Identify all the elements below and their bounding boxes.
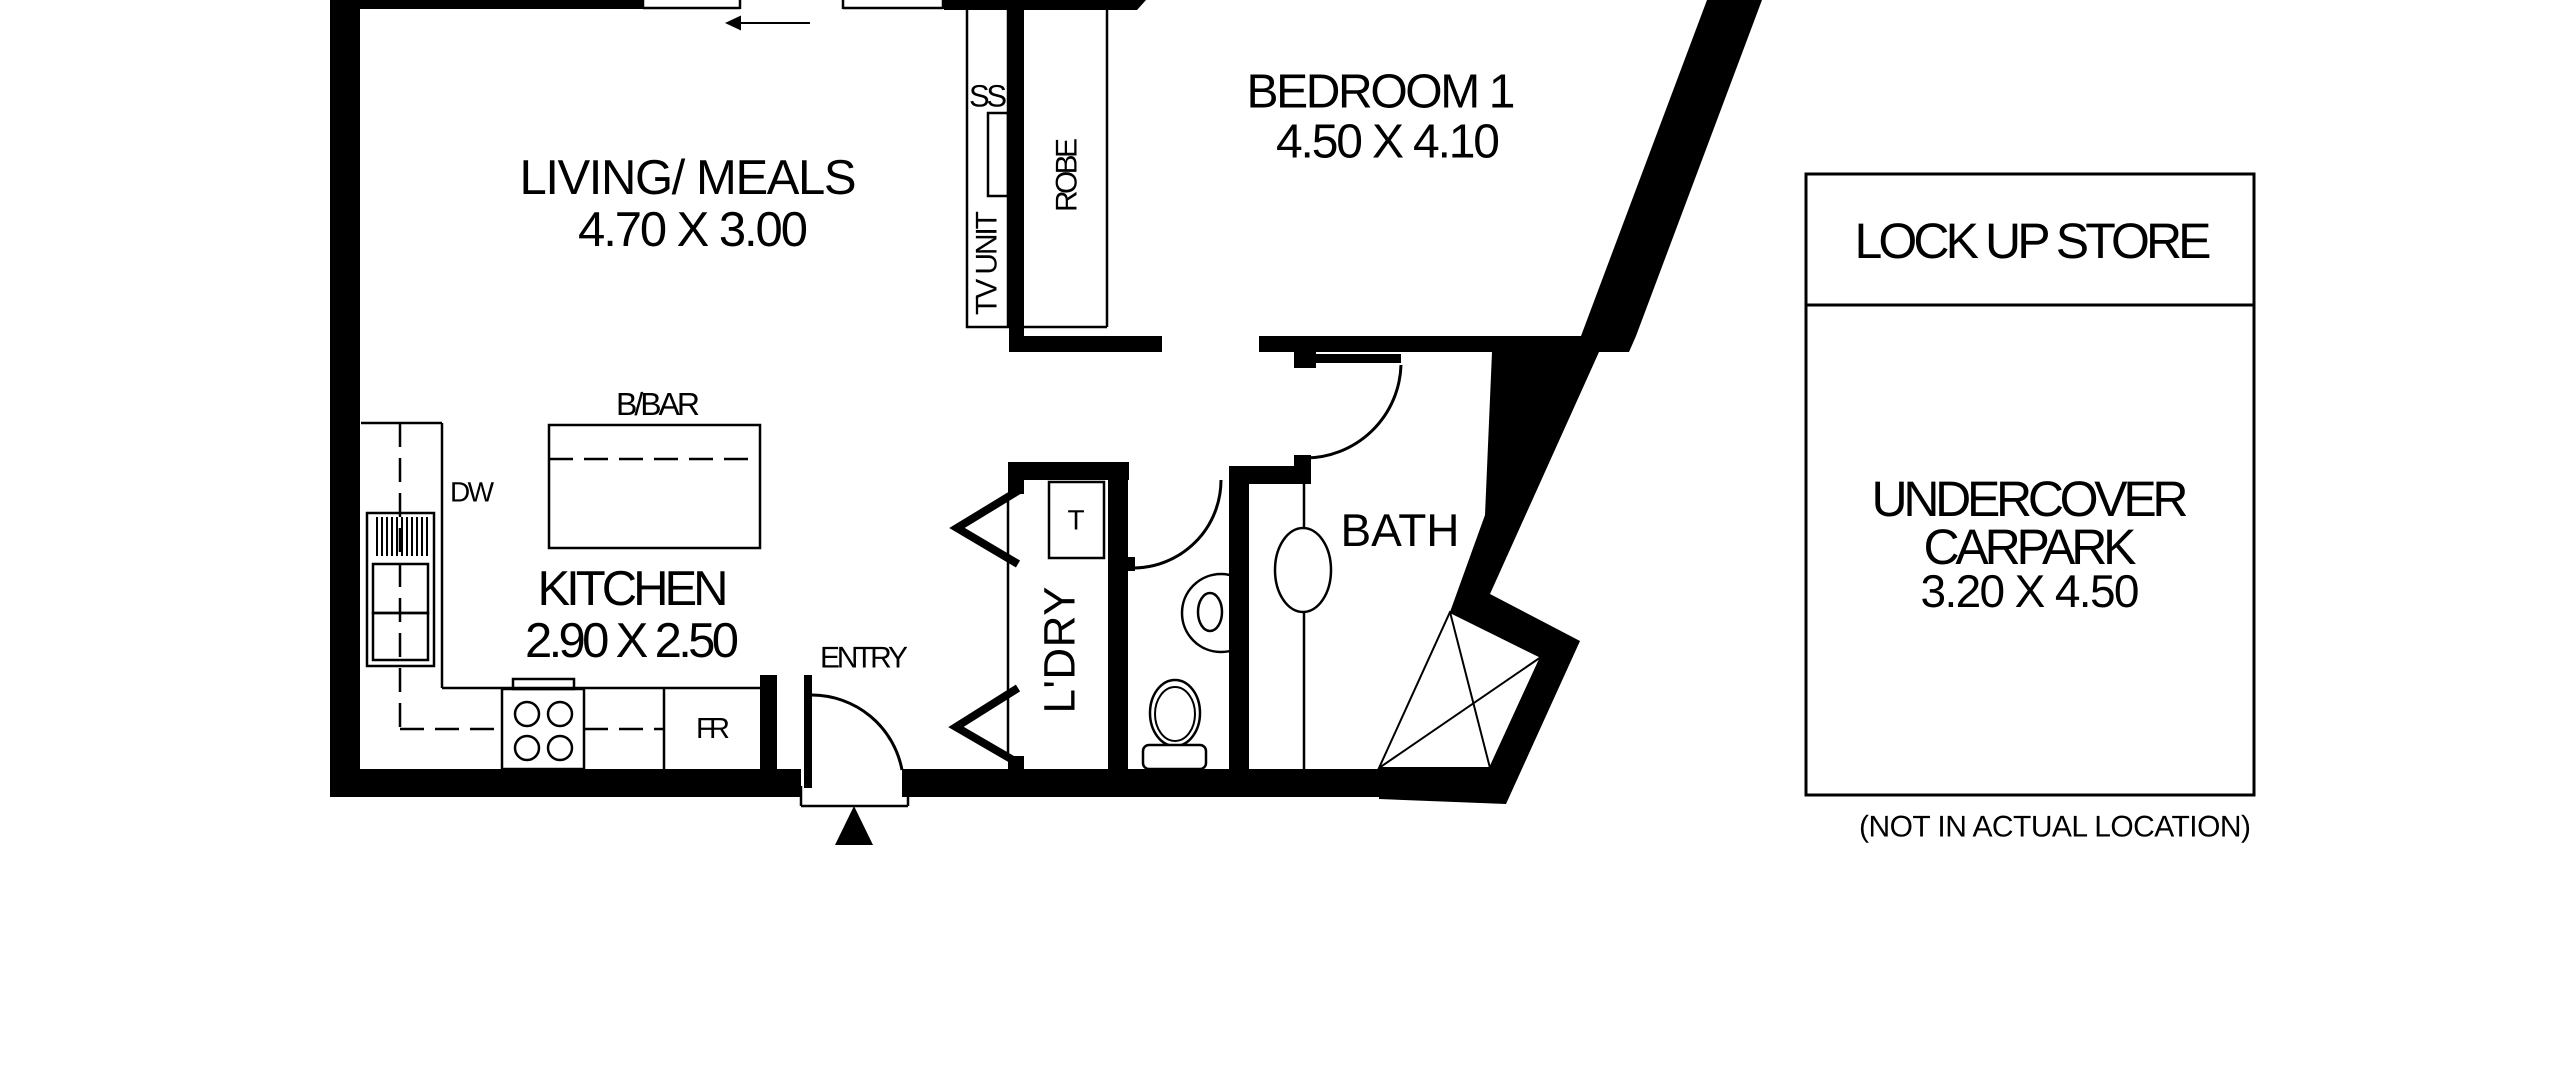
svg-text:BATH: BATH [1341, 504, 1460, 556]
svg-text:FR: FR [696, 713, 730, 745]
svg-text:DW: DW [450, 477, 495, 508]
svg-text:2.90 X 2.50: 2.90 X 2.50 [525, 614, 739, 668]
svg-text:BEDROOM 1: BEDROOM 1 [1247, 66, 1516, 119]
svg-text:4.50 X 4.10: 4.50 X 4.10 [1276, 116, 1500, 169]
svg-text:4.70 X 3.00: 4.70 X 3.00 [578, 203, 808, 257]
svg-text:ENTRY: ENTRY [820, 642, 908, 675]
svg-text:T: T [1067, 505, 1084, 536]
svg-text:L'DRY: L'DRY [1036, 587, 1085, 714]
svg-text:SS: SS [969, 79, 1007, 114]
svg-text:LOCK UP STORE: LOCK UP STORE [1855, 213, 2212, 269]
svg-text:B/BAR: B/BAR [616, 386, 700, 422]
svg-text:KITCHEN: KITCHEN [538, 562, 729, 616]
svg-text:ROBE: ROBE [1051, 138, 1084, 212]
svg-text:(NOT IN ACTUAL LOCATION): (NOT IN ACTUAL LOCATION) [1859, 811, 2251, 844]
svg-text:LIVING/ MEALS: LIVING/ MEALS [520, 151, 857, 205]
svg-text:3.20 X 4.50: 3.20 X 4.50 [1921, 565, 2140, 617]
svg-text:TV UNIT: TV UNIT [971, 211, 1004, 315]
